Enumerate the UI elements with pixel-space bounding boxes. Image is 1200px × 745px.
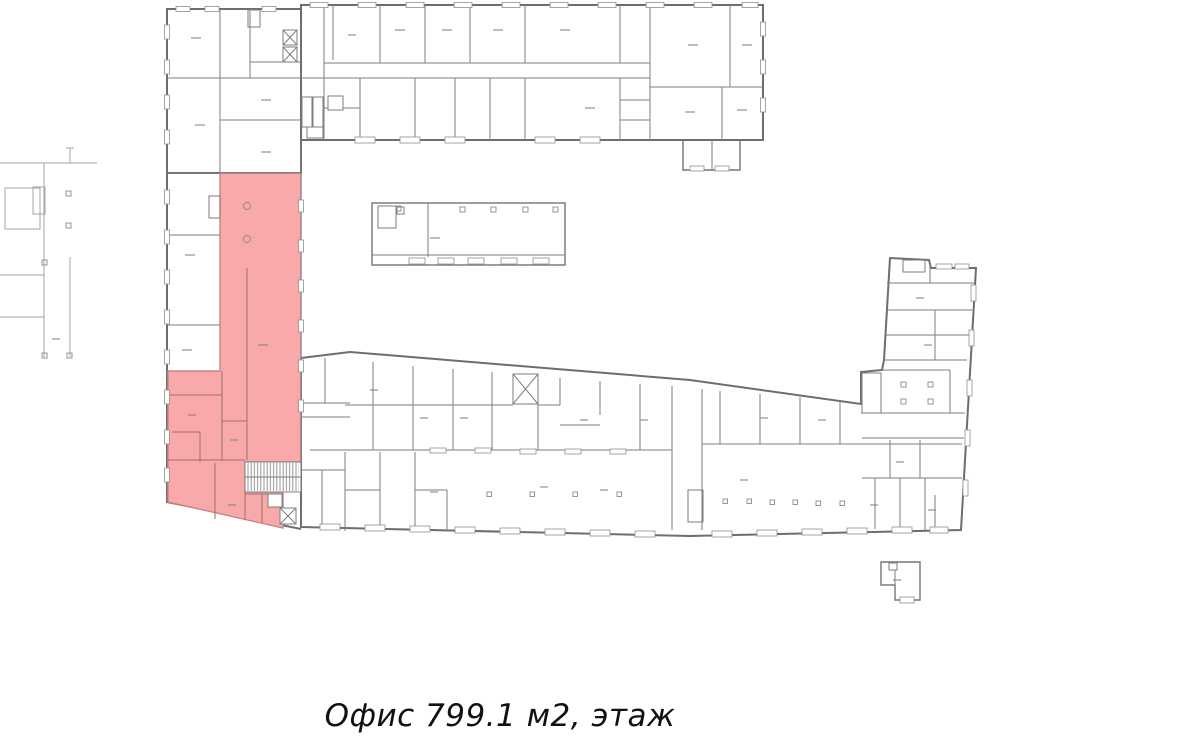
staircase-symbol bbox=[688, 490, 703, 522]
column-markers bbox=[901, 382, 933, 404]
detached-annex-outline bbox=[881, 562, 920, 600]
floor-plan-canvas: Офис 799.1 м2, этаж bbox=[0, 0, 1200, 745]
staircase-symbol bbox=[862, 373, 881, 413]
highlighted-area-staircase bbox=[245, 462, 301, 492]
bottom-wing-walls bbox=[301, 358, 962, 532]
top-wing-walls bbox=[301, 5, 763, 170]
detached-annex-walls bbox=[881, 562, 897, 585]
elevator-shaft-symbol bbox=[513, 374, 538, 404]
staircase-symbol bbox=[33, 187, 45, 214]
staircase-symbol bbox=[302, 97, 323, 138]
right-wing-walls bbox=[861, 260, 974, 530]
adjacent-building-outline bbox=[0, 148, 97, 358]
plan-caption: Офис 799.1 м2, этаж bbox=[150, 698, 850, 734]
staircase-symbol bbox=[209, 196, 220, 218]
detached-building-walls bbox=[372, 203, 565, 257]
column-markers bbox=[396, 206, 558, 212]
elevator-symbol bbox=[283, 30, 297, 62]
floor-plan-svg bbox=[0, 0, 1200, 745]
column-markers bbox=[42, 191, 72, 358]
column-markers bbox=[487, 492, 845, 506]
staircase-symbol bbox=[903, 260, 925, 272]
staircase-symbol bbox=[378, 206, 396, 228]
utility-room bbox=[328, 96, 343, 110]
